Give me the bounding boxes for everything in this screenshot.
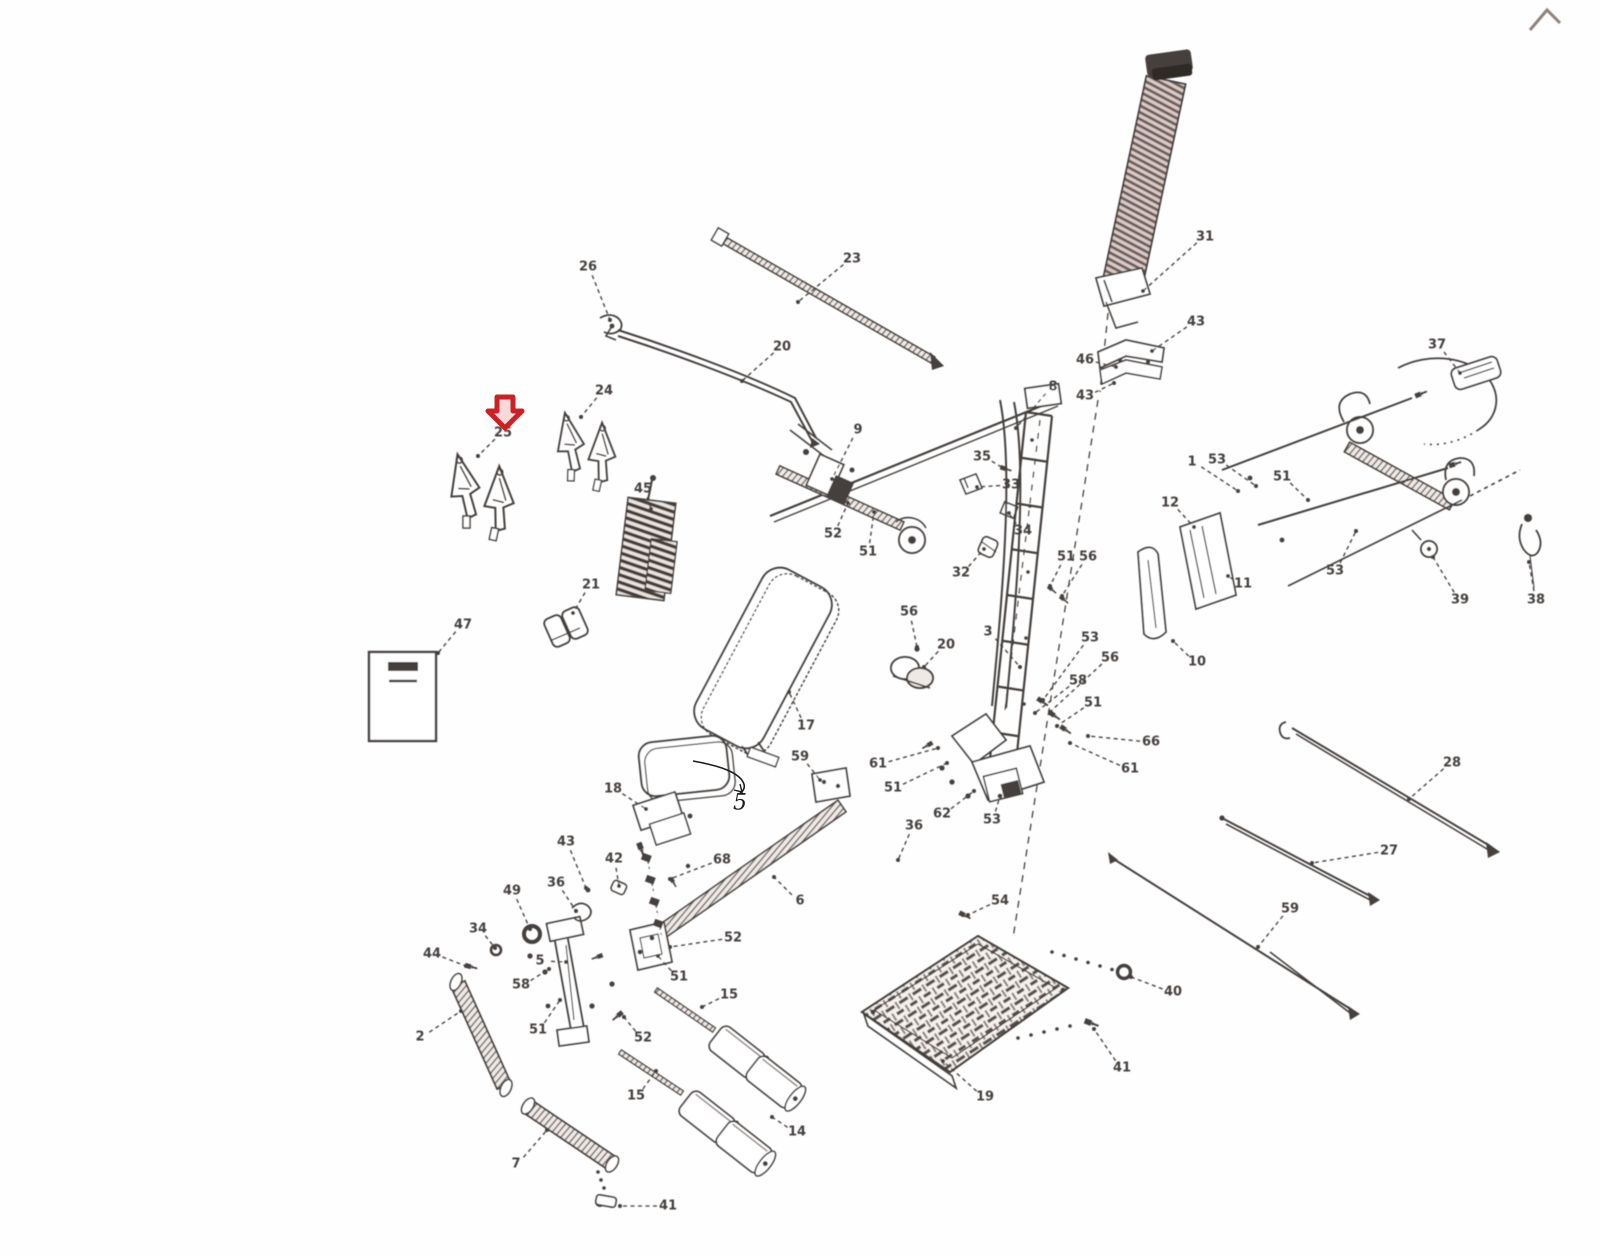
part-label-58: 58: [1069, 674, 1087, 689]
part-label-54: 54: [991, 894, 1009, 909]
part-label-10: 10: [1188, 655, 1206, 670]
red-arrow-marker: [488, 397, 522, 428]
part-label-62: 62: [933, 807, 951, 822]
part-bracket-46: [1098, 340, 1164, 384]
part-label-42: 42: [605, 852, 623, 867]
part-label-19: 19: [976, 1090, 994, 1105]
part-label-34: 34: [469, 922, 487, 937]
part-label-36: 36: [547, 876, 565, 891]
part-label-28: 28: [1443, 756, 1461, 771]
part-label-2: 2: [415, 1030, 424, 1045]
part-label-52: 52: [634, 1031, 652, 1046]
part-label-53: 53: [1326, 564, 1344, 579]
part-bolt-41b: [595, 1194, 617, 1207]
part-label-14: 14: [788, 1125, 806, 1140]
part-hardware-column-right: [1036, 585, 1072, 736]
part-pin-rod-15a: [655, 988, 716, 1032]
part-label-15: 15: [627, 1089, 645, 1104]
part-rod-27: [1219, 815, 1380, 906]
part-label-31: 31: [1196, 230, 1214, 245]
part-label-59: 59: [1281, 902, 1299, 917]
part-label-53: 53: [1208, 453, 1226, 468]
part-rod-28: [1280, 722, 1500, 858]
part-label-53: 53: [983, 813, 1001, 828]
part-bracket-pair-25: [446, 452, 517, 542]
part-label-15: 15: [720, 988, 738, 1003]
part-upright-column-8-3: [988, 384, 1061, 782]
scan-artifact: [1530, 10, 1560, 30]
part-label-51: 51: [1273, 470, 1291, 485]
part-seat-pad-5: [637, 735, 736, 804]
part-label-37: 37: [1428, 338, 1446, 353]
part-label-11: 11: [1234, 577, 1252, 592]
part-label-6: 6: [795, 894, 804, 909]
part-label-32: 32: [952, 566, 970, 581]
part-manual-placard-47: [369, 652, 436, 741]
part-label-20: 20: [773, 340, 791, 355]
note-text: 5: [733, 791, 747, 816]
part-label-53: 53: [1081, 631, 1099, 646]
part-label-51: 51: [529, 1023, 547, 1038]
part-resistance-cord-bundle-31: [1102, 49, 1193, 290]
part-label-5: 5: [535, 954, 544, 969]
part-pulley-39: [1412, 530, 1437, 557]
part-seat-post-link: [547, 917, 589, 1046]
part-label-51: 51: [859, 545, 877, 560]
part-strap-10: [1138, 547, 1166, 638]
part-label-8: 8: [1048, 380, 1057, 395]
part-label-61: 61: [1121, 762, 1139, 777]
part-label-24: 24: [595, 384, 613, 399]
part-label-21: 21: [582, 578, 600, 593]
part-label-18: 18: [604, 782, 622, 797]
part-lat-bar-23: [711, 228, 944, 370]
part-label-45: 45: [634, 482, 652, 497]
part-label-56: 56: [1101, 651, 1119, 666]
part-label-36: 36: [905, 819, 923, 834]
part-leg-developer-assembly: [1222, 389, 1520, 586]
part-hook-26: [600, 315, 622, 334]
part-label-51: 51: [1084, 696, 1102, 711]
part-seat-carriage: [921, 714, 1044, 802]
part-foam-rollers-14: [676, 1024, 809, 1179]
part-label-52: 52: [824, 527, 842, 542]
part-label-52: 52: [724, 931, 742, 946]
part-label-46: 46: [1076, 353, 1094, 368]
part-label-1: 1: [1187, 455, 1196, 470]
part-snap-hook-38: [1519, 514, 1540, 588]
part-label-56: 56: [1079, 550, 1097, 565]
part-label-20: 20: [937, 638, 955, 653]
part-cable-handle-37: [1398, 355, 1502, 444]
part-label-47: 47: [454, 618, 472, 633]
part-label-40: 40: [1164, 985, 1182, 1000]
part-label-38: 38: [1527, 593, 1545, 608]
part-label-34: 34: [1014, 524, 1032, 539]
part-handle-tube-7: [519, 1096, 621, 1190]
part-label-58: 58: [512, 978, 530, 993]
part-label-68: 68: [713, 853, 731, 868]
part-label-33: 33: [1002, 478, 1020, 493]
part-label-59: 59: [791, 750, 809, 765]
part-label-66: 66: [1142, 735, 1160, 750]
part-label-35: 35: [973, 450, 991, 465]
part-label-51: 51: [1057, 550, 1075, 565]
part-guide-rod-59: [1108, 852, 1360, 1020]
part-bracket-pair-24: [554, 411, 618, 492]
part-label-7: 7: [511, 1157, 520, 1172]
part-label-61: 61: [869, 757, 887, 772]
part-label-41: 41: [659, 1199, 677, 1214]
scanned-artwork: 3143464382326202425452147952513533343256…: [369, 10, 1560, 1214]
part-label-27: 27: [1380, 844, 1398, 859]
part-label-23: 23: [843, 252, 861, 267]
part-label-12: 12: [1161, 496, 1179, 511]
part-label-44: 44: [423, 947, 441, 962]
part-seat-frame-18: [633, 792, 692, 858]
part-label-39: 39: [1451, 593, 1469, 608]
part-label-49: 49: [503, 884, 521, 899]
part-foot-platform-19: [862, 936, 1068, 1088]
part-cord-bracket-31: [1096, 268, 1150, 328]
diagram-canvas: 3143464382326202425452147952513533343256…: [0, 0, 1600, 1256]
part-label-43: 43: [557, 835, 575, 850]
part-label-51: 51: [884, 781, 902, 796]
part-label-51: 51: [670, 970, 688, 985]
part-label-17: 17: [797, 719, 815, 734]
part-label-43: 43: [1076, 389, 1094, 404]
part-label-9: 9: [853, 423, 862, 438]
part-label-3: 3: [983, 625, 992, 640]
part-label-56: 56: [900, 605, 918, 620]
part-clamp-21: [543, 606, 590, 649]
part-label-41: 41: [1113, 1061, 1131, 1076]
part-front-leg-2: [448, 972, 515, 1099]
part-guide-plate-12: [1180, 513, 1236, 609]
exploded-parts-diagram: 3143464382326202425452147952513533343256…: [0, 0, 1600, 1256]
part-label-43: 43: [1187, 315, 1205, 330]
part-bracket-59: [812, 768, 850, 802]
part-clamp-20b: [891, 646, 933, 688]
part-label-26: 26: [579, 260, 597, 275]
